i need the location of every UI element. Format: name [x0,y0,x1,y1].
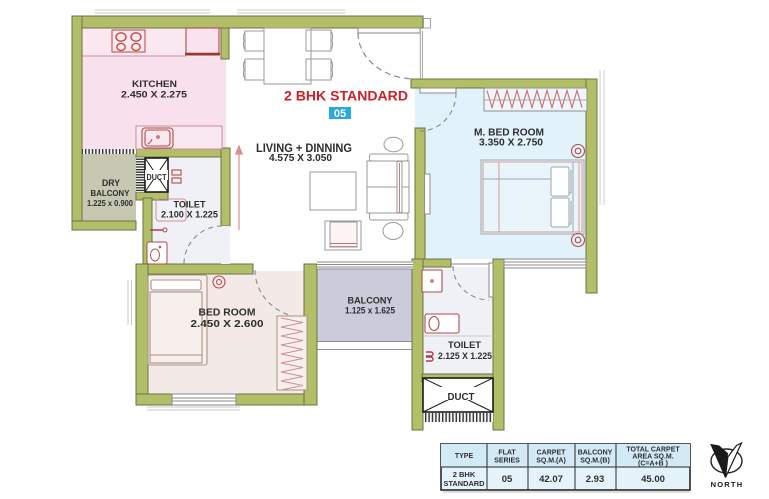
svg-text:BED ROOM: BED ROOM [199,308,256,319]
svg-text:2.93: 2.93 [586,474,605,485]
svg-text:(C=A+B ): (C=A+B ) [638,461,668,468]
svg-text:1.125 x 1.625: 1.125 x 1.625 [345,306,396,317]
svg-text:2.450 X 2.600: 2.450 X 2.600 [191,319,265,330]
svg-text:BALCONY: BALCONY [578,450,613,457]
svg-text:3.350 X 2.750: 3.350 X 2.750 [479,138,543,149]
svg-text:2 BHK: 2 BHK [453,470,476,479]
svg-text:TOTAL CARPET: TOTAL CARPET [626,447,680,454]
svg-text:TYPE: TYPE [455,453,474,460]
svg-text:AREA SQ.M.: AREA SQ.M. [632,454,673,461]
svg-text:4.575 X 3.050: 4.575 X 3.050 [269,152,332,164]
svg-text:SERIES: SERIES [494,458,520,465]
svg-text:DUCT: DUCT [448,391,476,403]
svg-text:DUCT: DUCT [147,172,168,182]
svg-text:SQ.M.(A): SQ.M.(A) [536,458,566,465]
svg-text:TOILET: TOILET [174,199,206,210]
svg-text:2.125 X 1.225: 2.125 X 1.225 [438,351,493,362]
svg-text:05: 05 [334,108,346,120]
svg-text:2.450 X 2.275: 2.450 X 2.275 [121,90,188,101]
svg-text:KITCHEN: KITCHEN [132,79,177,90]
svg-text:2 BHK STANDARD: 2 BHK STANDARD [284,89,408,104]
svg-text:2.100 X 1.225: 2.100 X 1.225 [161,210,219,221]
svg-text:TOILET: TOILET [448,340,481,351]
svg-text:SQ.M.(B): SQ.M.(B) [580,458,610,465]
svg-text:BALCONY: BALCONY [91,188,130,198]
svg-text:CARPET: CARPET [537,450,567,457]
svg-text:45.00: 45.00 [641,474,665,485]
svg-text:05: 05 [502,474,513,485]
svg-text:NORTH: NORTH [711,480,744,489]
svg-text:DRY: DRY [102,178,120,188]
svg-text:STANDARD: STANDARD [444,479,486,488]
svg-text:1.225 x 0.900: 1.225 x 0.900 [87,198,133,208]
svg-text:42.07: 42.07 [539,474,563,485]
svg-text:FLAT: FLAT [498,450,516,457]
